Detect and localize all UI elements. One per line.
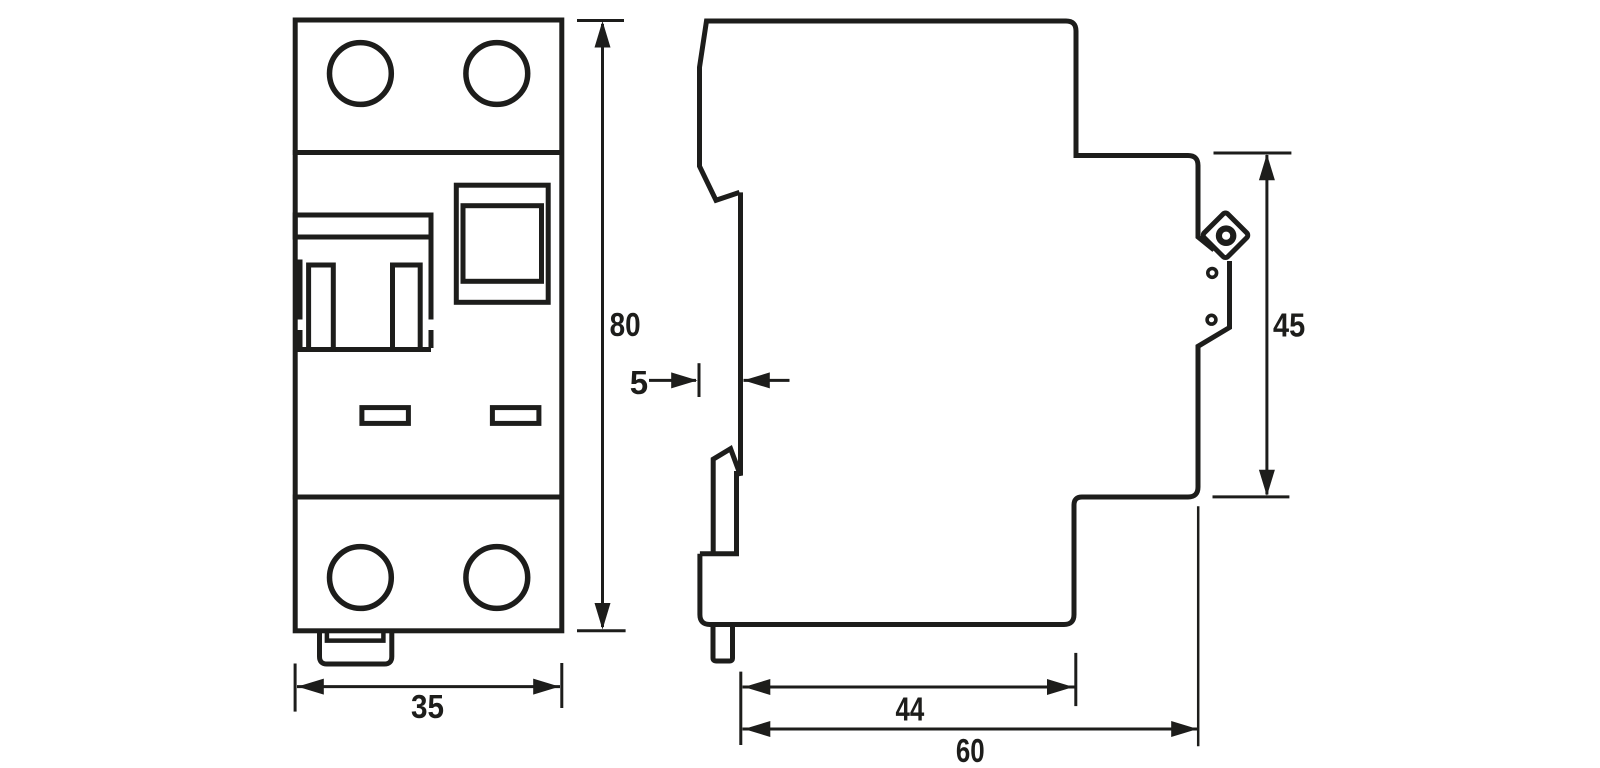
svg-text:44: 44 (896, 691, 925, 728)
svg-text:80: 80 (610, 306, 641, 343)
svg-text:5: 5 (630, 364, 648, 401)
svg-text:60: 60 (956, 732, 985, 768)
svg-text:35: 35 (411, 688, 444, 725)
svg-text:45: 45 (1273, 307, 1305, 344)
